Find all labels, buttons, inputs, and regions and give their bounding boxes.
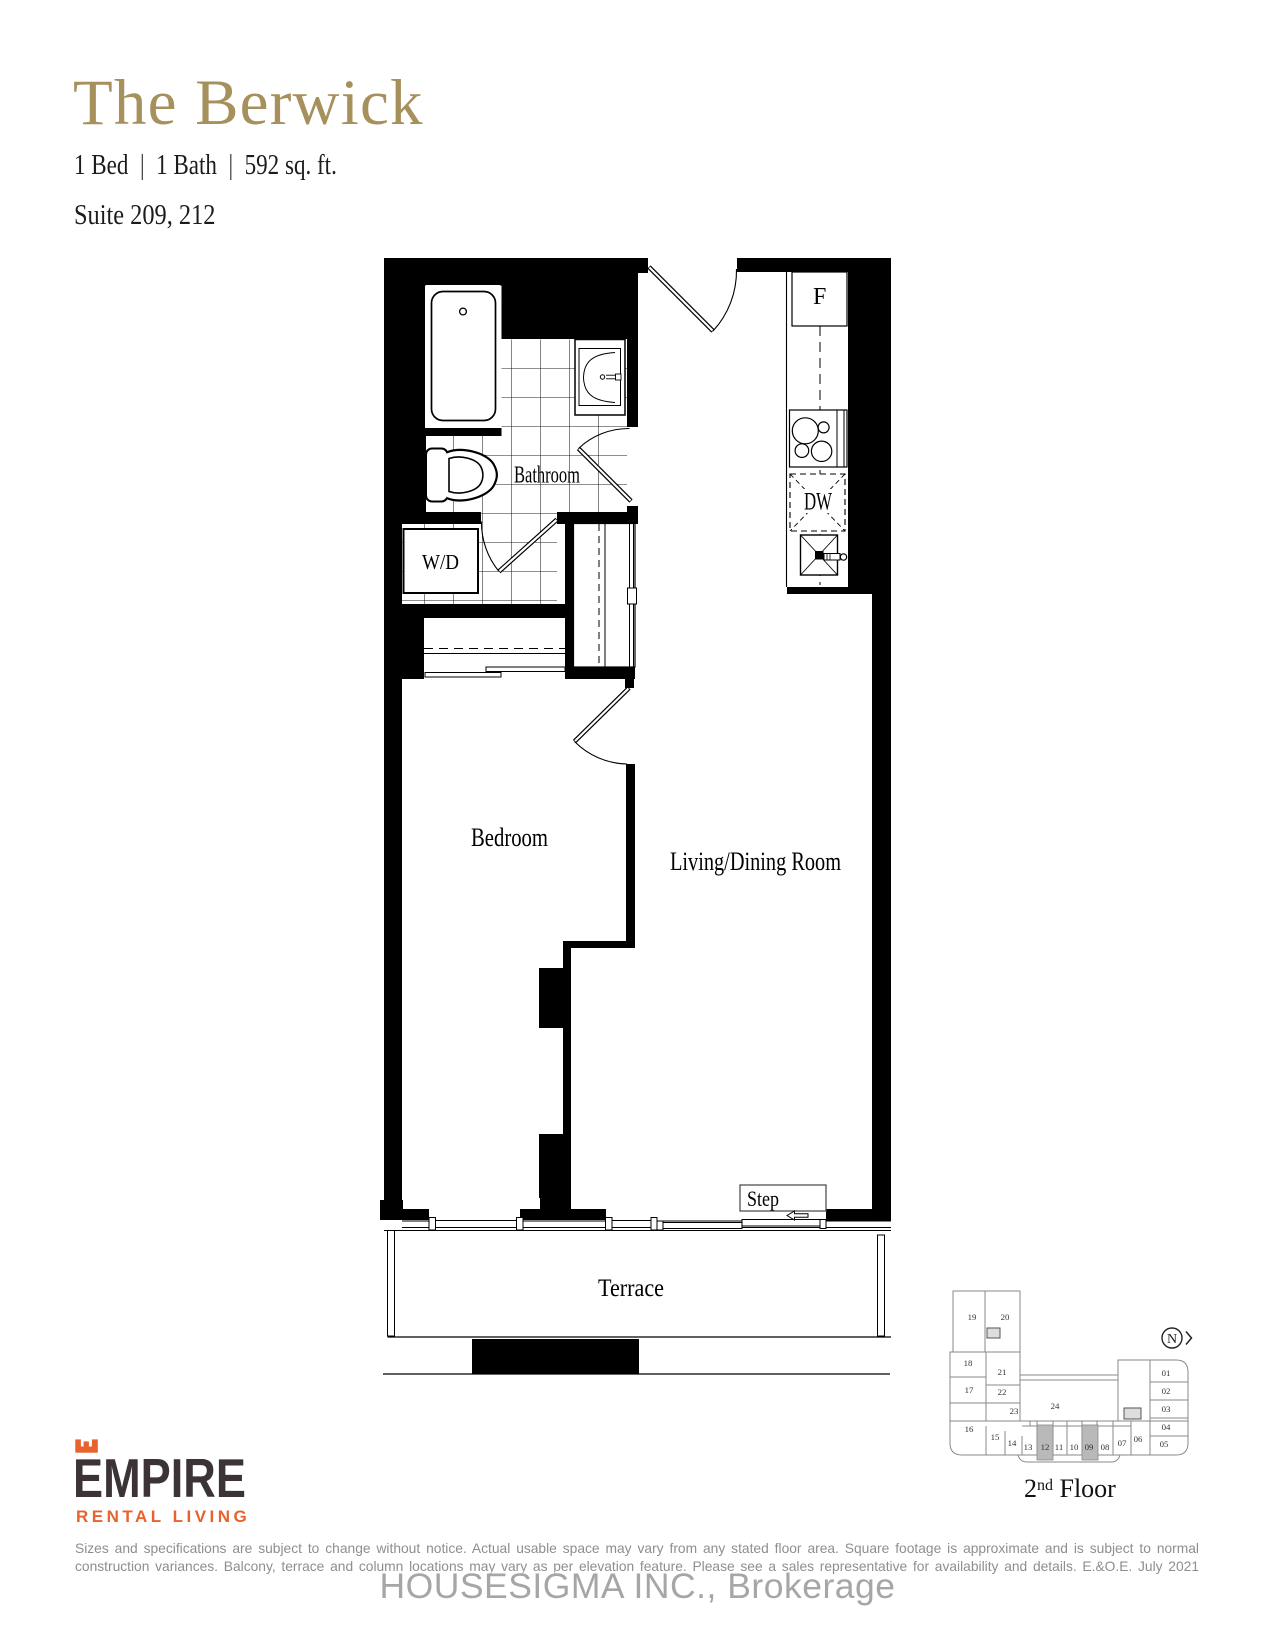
svg-text:22: 22 bbox=[998, 1387, 1007, 1397]
svg-text:23: 23 bbox=[1010, 1406, 1019, 1416]
svg-text:13: 13 bbox=[1024, 1442, 1033, 1452]
svg-text:10: 10 bbox=[1070, 1442, 1079, 1452]
svg-text:21: 21 bbox=[998, 1367, 1007, 1377]
svg-text:Bedroom: Bedroom bbox=[471, 823, 548, 852]
svg-text:12: 12 bbox=[1041, 1442, 1050, 1452]
svg-text:05: 05 bbox=[1160, 1439, 1169, 1449]
svg-text:F: F bbox=[813, 284, 826, 310]
svg-text:20: 20 bbox=[1001, 1312, 1010, 1322]
svg-text:14: 14 bbox=[1008, 1438, 1017, 1448]
svg-text:11: 11 bbox=[1055, 1442, 1063, 1452]
svg-text:04: 04 bbox=[1162, 1422, 1171, 1432]
svg-text:19: 19 bbox=[968, 1312, 977, 1322]
svg-text:16: 16 bbox=[965, 1424, 974, 1434]
svg-text:Terrace: Terrace bbox=[598, 1273, 664, 1302]
svg-text:07: 07 bbox=[1118, 1438, 1127, 1448]
svg-text:02: 02 bbox=[1162, 1386, 1171, 1396]
svg-text:Step: Step bbox=[747, 1186, 779, 1211]
svg-text:03: 03 bbox=[1162, 1404, 1171, 1414]
svg-text:15: 15 bbox=[991, 1432, 1000, 1442]
svg-text:24: 24 bbox=[1051, 1401, 1060, 1411]
svg-text:N: N bbox=[1167, 1332, 1177, 1347]
svg-text:17: 17 bbox=[965, 1385, 974, 1395]
svg-text:DW: DW bbox=[804, 489, 832, 516]
svg-text:Living/Dining Room: Living/Dining Room bbox=[670, 847, 841, 876]
svg-text:08: 08 bbox=[1101, 1442, 1110, 1452]
svg-text:09: 09 bbox=[1085, 1442, 1094, 1452]
svg-text:06: 06 bbox=[1134, 1434, 1143, 1444]
svg-text:01: 01 bbox=[1162, 1368, 1171, 1378]
svg-text:18: 18 bbox=[964, 1358, 973, 1368]
svg-text:W/D: W/D bbox=[422, 550, 459, 574]
svg-text:Bathroom: Bathroom bbox=[514, 463, 580, 489]
